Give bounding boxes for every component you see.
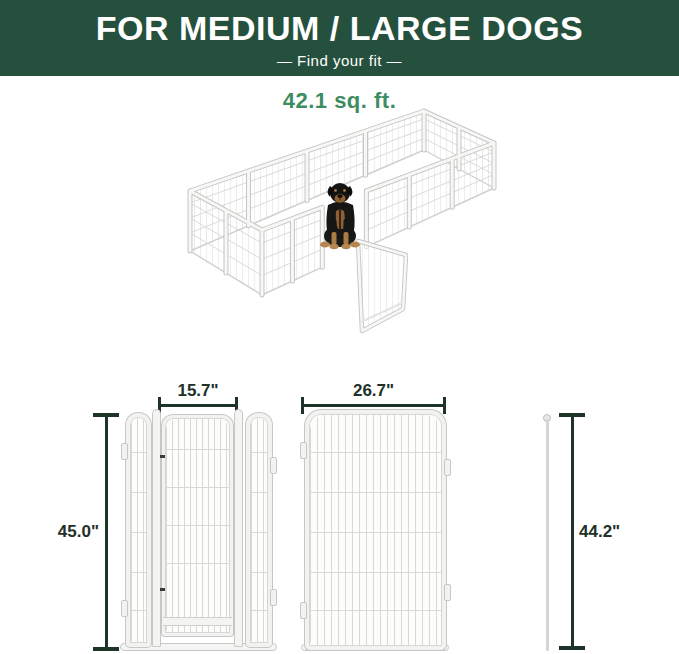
rod-height-line bbox=[571, 415, 574, 648]
door-height-label: 45.0" bbox=[58, 522, 99, 542]
door-panel-assembly bbox=[152, 409, 243, 647]
dimension-rod-height: 44.2" bbox=[559, 413, 585, 650]
door-width-label: 15.7" bbox=[158, 381, 238, 401]
wide-panel bbox=[305, 410, 446, 650]
door-width-line bbox=[158, 404, 238, 407]
door-hinge bbox=[160, 455, 165, 458]
connector-tab bbox=[270, 589, 277, 606]
door-panel bbox=[162, 415, 233, 636]
door-mesh bbox=[166, 419, 229, 632]
banner-title: FOR MEDIUM / LARGE DOGS bbox=[0, 11, 679, 47]
connector-tab bbox=[444, 459, 451, 476]
connector-tab bbox=[300, 602, 307, 619]
door-hinge bbox=[160, 588, 165, 591]
narrow-panel-right-mesh bbox=[251, 418, 267, 642]
rod-height-label: 44.2" bbox=[579, 522, 620, 542]
header-banner: FOR MEDIUM / LARGE DOGS — Find your fit … bbox=[0, 0, 679, 76]
door-frame-left-tube bbox=[152, 409, 161, 647]
dimension-door-height: 45.0" bbox=[93, 413, 119, 651]
connector-tab bbox=[270, 457, 277, 474]
connector-tab bbox=[121, 600, 128, 617]
pen-open-door bbox=[358, 241, 406, 331]
product-infographic: FOR MEDIUM / LARGE DOGS — Find your fit … bbox=[0, 0, 679, 654]
ground-rod bbox=[543, 414, 552, 651]
door-frame-right-tube bbox=[234, 409, 243, 647]
narrow-panel-left bbox=[126, 413, 151, 647]
playpen-3d-illustration bbox=[140, 103, 520, 365]
wide-panel-mesh bbox=[310, 415, 441, 645]
dimension-panel-width: 26.7" bbox=[301, 381, 446, 407]
dimension-door-width: 15.7" bbox=[158, 381, 238, 407]
door-height-line bbox=[105, 415, 108, 649]
connector-tab bbox=[121, 443, 128, 460]
panel-width-label: 26.7" bbox=[301, 381, 446, 401]
ground-rod-stick bbox=[546, 419, 549, 651]
connector-tab bbox=[300, 442, 307, 459]
panel-width-line bbox=[301, 404, 446, 407]
door-bottom-rail bbox=[163, 617, 232, 626]
banner-subtitle: — Find your fit — bbox=[0, 52, 679, 69]
narrow-panel-left-mesh bbox=[131, 418, 146, 642]
narrow-panel-right bbox=[246, 413, 272, 647]
connector-tab bbox=[444, 584, 451, 601]
